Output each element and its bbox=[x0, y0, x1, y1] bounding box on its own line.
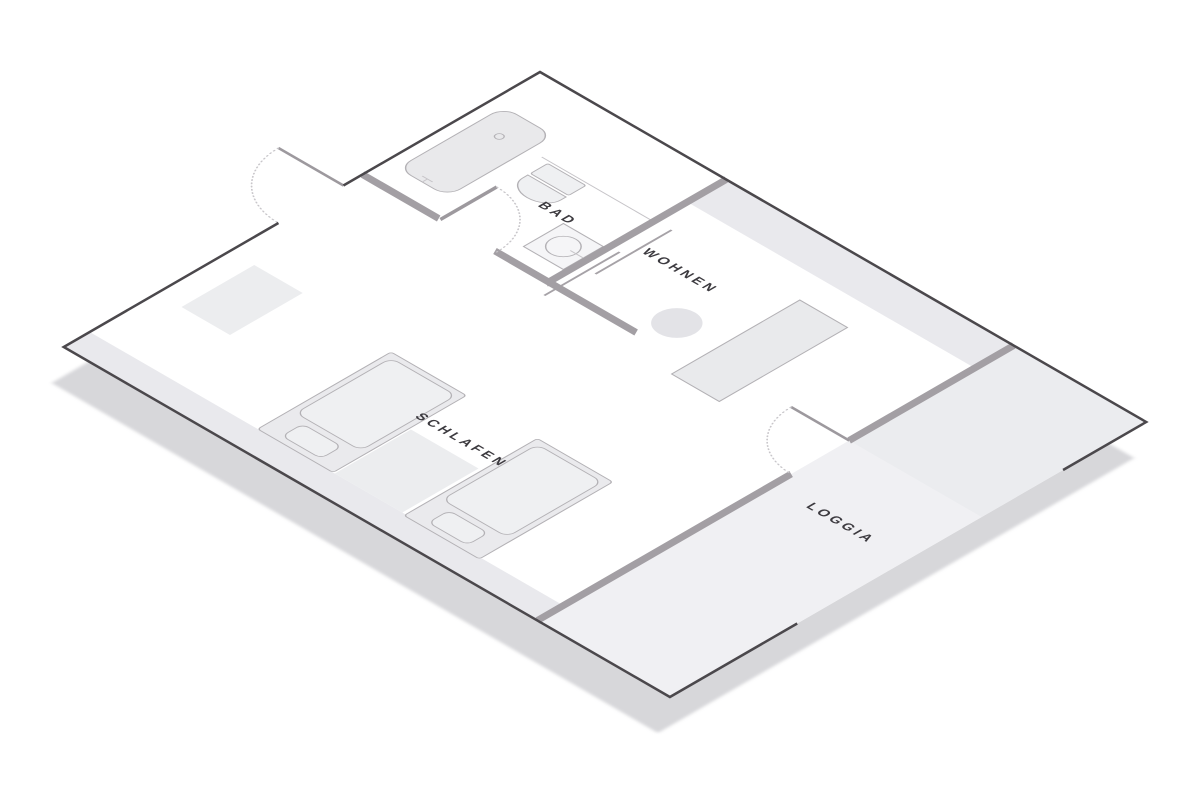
floor-plan-canvas: BAD WOHNEN SCHLAFEN LOGGIA bbox=[0, 0, 1200, 800]
plan-layer: BAD WOHNEN SCHLAFEN LOGGIA bbox=[0, 35, 1146, 698]
entry-door-leaf bbox=[278, 148, 343, 186]
floor-plan-scene: BAD WOHNEN SCHLAFEN LOGGIA bbox=[0, 0, 1200, 800]
